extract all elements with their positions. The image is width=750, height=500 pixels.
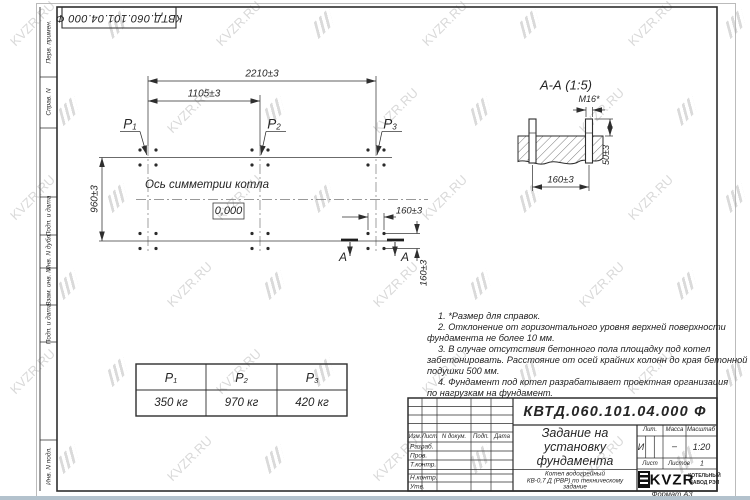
note-line: забетонировать. Расстояние от осей крайн… xyxy=(427,355,747,365)
title-block-designation: КВТД.060.101.04.000 Ф xyxy=(523,404,706,420)
lit-value: И xyxy=(638,442,644,452)
rev-col-data: Дата xyxy=(494,434,510,440)
product-line: задание xyxy=(563,484,587,491)
lit-label: Лит. xyxy=(643,427,657,433)
note-line: фундамента не более 10 мм. xyxy=(427,333,555,343)
sheet-label: Лист xyxy=(642,461,657,467)
scale-label: Масштаб xyxy=(687,427,715,433)
dim-160-vertical: 160±3 xyxy=(418,259,429,285)
table-header-p2: P2 xyxy=(235,370,248,384)
doc-title-line: фундамента xyxy=(537,454,614,468)
load-label-p2: P2 xyxy=(267,116,281,131)
section-cut-letter-left: А xyxy=(339,250,347,264)
note-line: 3. В случае отсутствия бетонного пола пл… xyxy=(438,344,710,354)
thread-label-m16: М16* xyxy=(578,94,599,104)
margin-label-perv-primen: Перв. примен. xyxy=(45,20,52,63)
drawing-sheet: KVZR.RUKVZR.RUKVZR.RUKVZR.RUKVZR.RUKVZR.… xyxy=(0,0,750,500)
load-label-p1: P1 xyxy=(123,116,137,131)
mass-label: Масса xyxy=(666,427,684,433)
note-line: подушки 500 мм. xyxy=(427,366,499,376)
dim-50: 50±3 xyxy=(601,145,611,165)
rev-col-docum: N докум. xyxy=(442,434,466,440)
dim-960: 960±3 xyxy=(90,185,101,213)
margin-label-sprav-n: Справ. N xyxy=(45,88,52,115)
note-line: по нагрузкам на фундамент. xyxy=(427,388,553,398)
doc-title-line: установку xyxy=(544,440,606,454)
dim-160-section: 160±3 xyxy=(547,175,573,186)
sig-row-tkontr: Т.контр. xyxy=(410,461,436,468)
note-line: 1. *Размер для справок. xyxy=(438,311,540,321)
dim-1105: 1105±3 xyxy=(188,89,221,100)
sheets-label: Листов xyxy=(668,461,690,467)
margin-label-vzam-inv: Взам. инв. N xyxy=(45,268,52,306)
table-header-p3: P3 xyxy=(306,370,319,384)
doc-title-line: Задание на xyxy=(542,426,609,440)
margin-label-inv-podl: Инв. N подл. xyxy=(45,447,52,485)
section-title: А-А (1:5) xyxy=(540,77,592,92)
rev-col-izm: Изм. xyxy=(409,434,422,440)
margin-label-podp-data-2: Подп. и дата xyxy=(45,303,52,344)
sig-row-utv: Утв. xyxy=(410,483,425,490)
rev-col-podp: Подп. xyxy=(473,434,489,440)
top-stamp-designation: КВТД.060.101.04.000 Ф xyxy=(55,12,182,24)
rev-col-list: Лист xyxy=(422,434,437,440)
table-value-p3: 420 кг xyxy=(295,397,328,409)
plan-axis-label: Ось симметрии котла xyxy=(145,179,269,191)
sig-row-prov: Пров. xyxy=(410,452,427,459)
logo-caption-line: ЗАВОД РЭП xyxy=(690,480,720,486)
logo-caption-line: КОТЕЛЬНЫЙ xyxy=(688,473,721,479)
load-label-p3: P3 xyxy=(383,116,397,131)
bottom-edge-strip xyxy=(0,496,750,500)
note-line: 2. Отклонение от горизонтального уровня … xyxy=(438,322,726,332)
dim-2210: 2210±3 xyxy=(245,69,278,80)
sheets-value: 1 xyxy=(700,460,704,467)
scale-value: 1:20 xyxy=(693,442,711,452)
dim-160-horizontal: 160±3 xyxy=(396,206,422,217)
kvzr-logo-mark-icon xyxy=(638,471,650,488)
table-value-p1: 350 кг xyxy=(154,397,187,409)
level-mark: 0,000 xyxy=(215,205,243,217)
section-cut-letter-right: А xyxy=(401,250,409,264)
sig-row-razrab: Разраб. xyxy=(410,443,434,450)
margin-label-inv-dubl: Инв. N дубл. xyxy=(45,233,52,271)
note-line: 4. Фундамент под котел разрабатывает про… xyxy=(438,377,728,387)
mass-value: – xyxy=(672,441,677,451)
sig-row-nkontr: Н.контр. xyxy=(410,475,438,482)
margin-label-podp-data-1: Подп. и дата xyxy=(45,196,52,237)
table-header-p1: P1 xyxy=(165,370,178,384)
table-value-p2: 970 кг xyxy=(225,397,258,409)
